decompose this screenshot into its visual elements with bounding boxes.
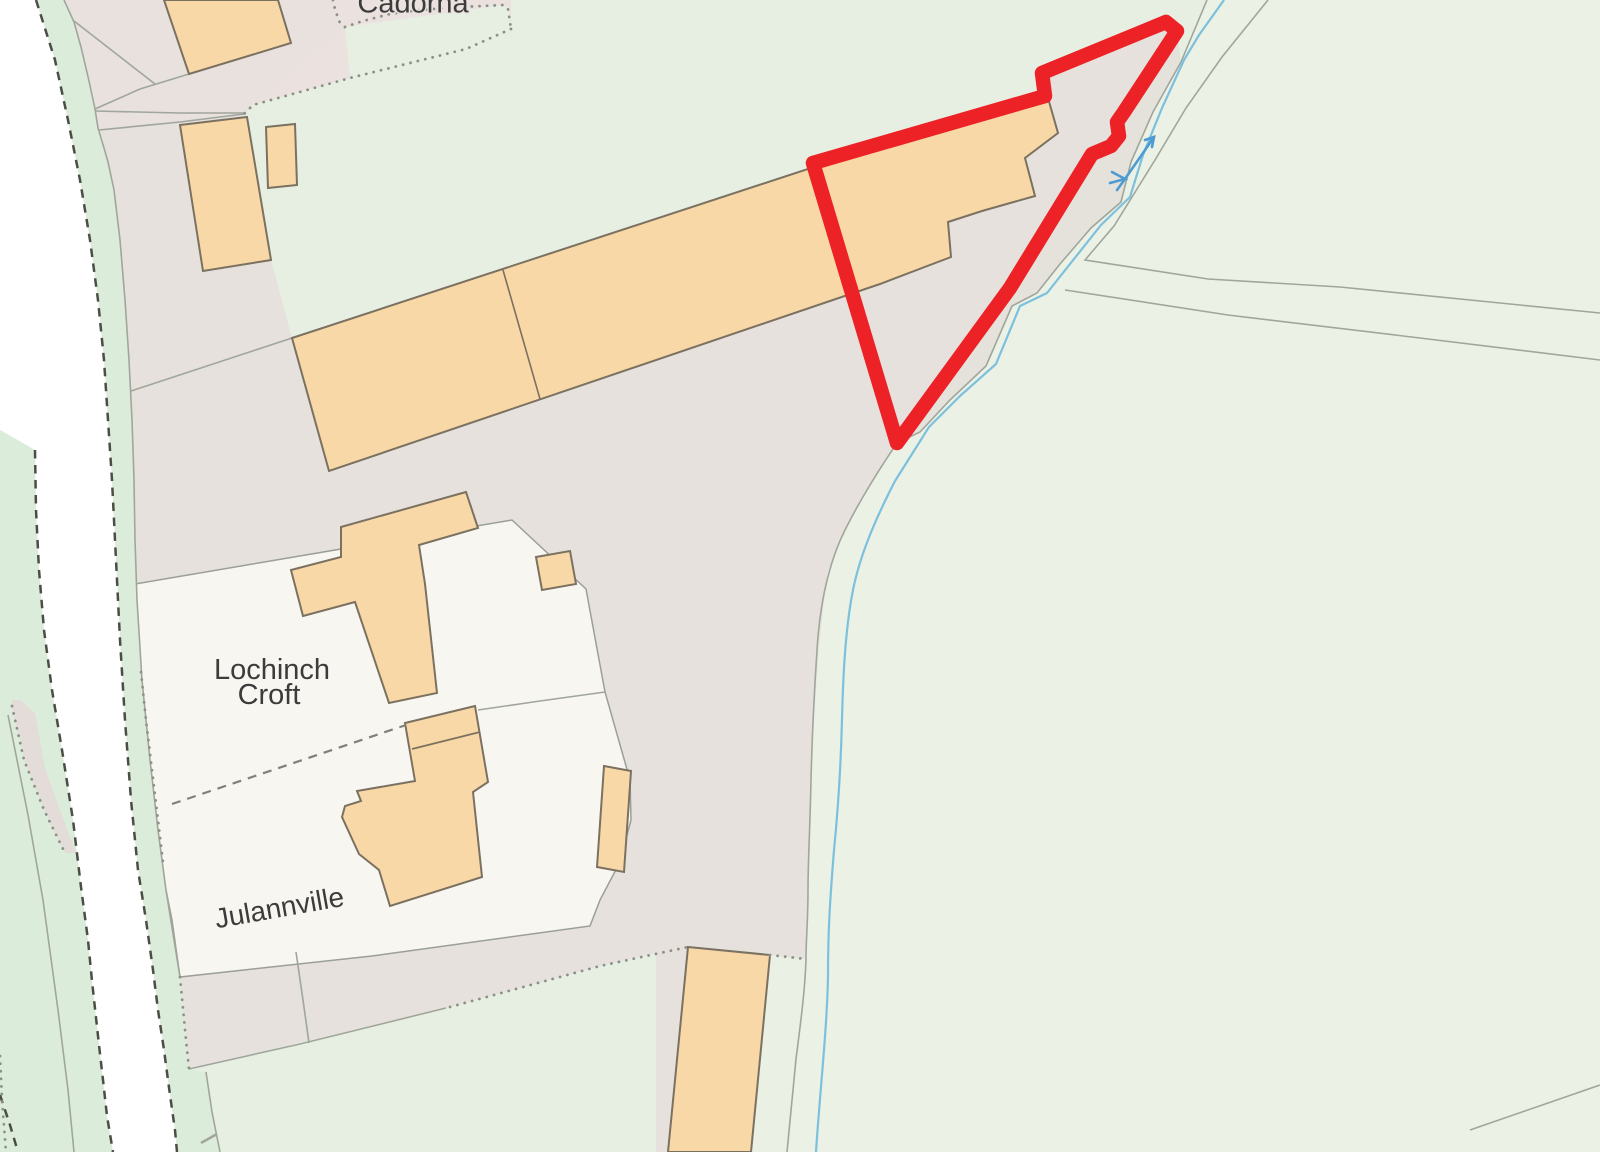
svg-text:Croft: Croft bbox=[238, 679, 301, 711]
svg-text:Cadorna: Cadorna bbox=[357, 0, 469, 20]
